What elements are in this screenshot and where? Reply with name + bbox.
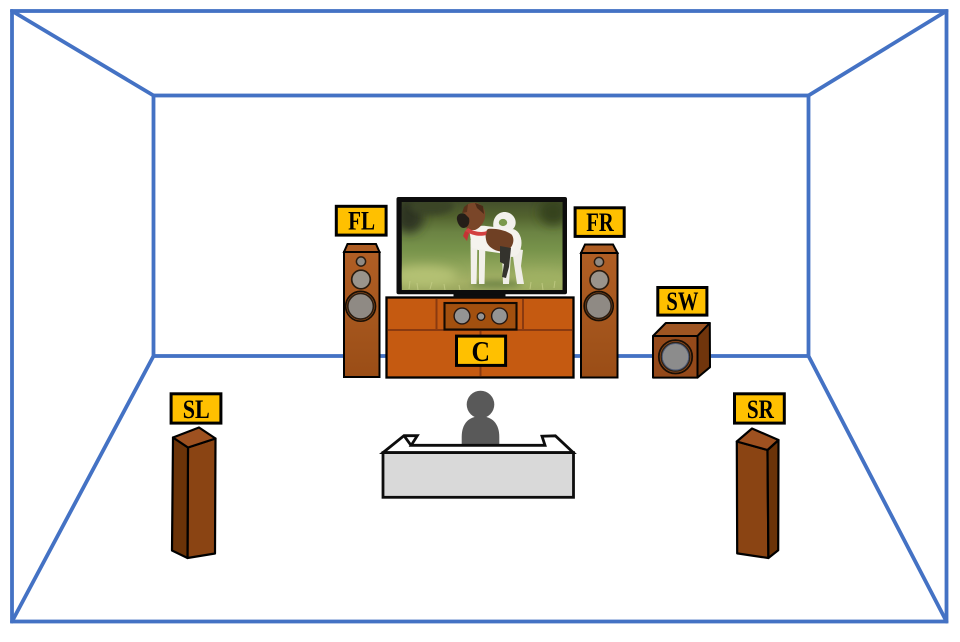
svg-text:FL: FL bbox=[348, 206, 375, 235]
svg-text:SL: SL bbox=[183, 395, 210, 424]
svg-text:C: C bbox=[472, 336, 491, 368]
svg-text:FR: FR bbox=[586, 208, 614, 237]
svg-text:SR: SR bbox=[747, 395, 774, 424]
svg-text:SW: SW bbox=[666, 287, 698, 316]
